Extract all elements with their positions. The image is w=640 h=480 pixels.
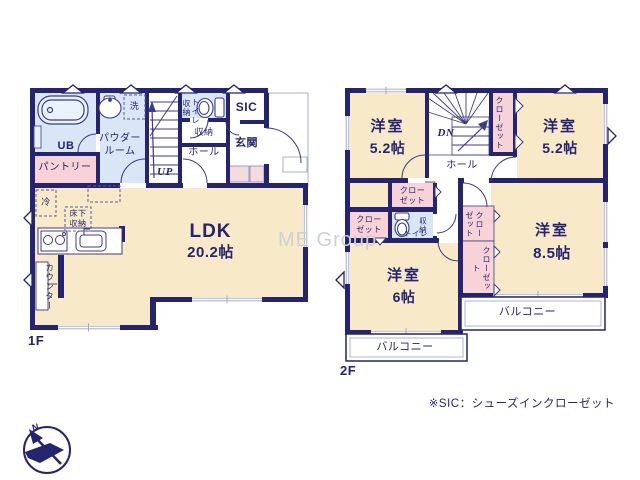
room-label-laundry: 洗 — [124, 101, 145, 112]
closet-e-upper-label: クロー ゼット — [464, 209, 484, 239]
balcony-se-label: バルコニー — [480, 306, 575, 320]
kitchen-sink-icon — [76, 229, 106, 251]
floor1-label: 1F — [28, 333, 68, 349]
room-label-pantry: パントリー — [33, 162, 97, 175]
hall-label-2f: ホール — [432, 160, 492, 173]
room-size-ne: 5.2帖 — [517, 140, 603, 158]
floor-plan-page: N UB パウダー ルーム 洗 パントリー 冷 床下 収納 カウンター UP 収… — [0, 0, 640, 480]
room-label-ub: UB — [46, 140, 86, 154]
toilet-label-1f: トイレ — [190, 94, 200, 128]
room-size-nw: 5.2帖 — [350, 140, 425, 158]
room-label-ne: 洋室 — [517, 118, 603, 137]
room-label-nw: 洋室 — [350, 118, 425, 137]
toilet-icon-1f — [197, 98, 224, 118]
closet-e-lower-label: クローゼット — [471, 244, 491, 292]
room-label-se: 洋室 — [497, 222, 607, 241]
hall-storage-label: 収納 — [180, 127, 228, 138]
room-size-se: 8.5帖 — [497, 245, 607, 264]
balcony-sw-label: バルコニー — [357, 341, 453, 355]
room-label-powder-room: パウダー ルーム — [94, 133, 146, 158]
sic-footnote: ※SIC：シューズインクローゼット — [420, 397, 615, 411]
compass-north-label: N — [31, 422, 40, 433]
fridge-label: 冷 — [36, 197, 56, 208]
staircase-down-icon — [428, 93, 489, 155]
room-size-ldk: 20.2帖 — [168, 244, 253, 263]
room-size-sw: 6帖 — [350, 289, 458, 307]
watermark: ME Group — [278, 228, 408, 253]
entrance-porch — [266, 93, 308, 186]
hall-label-1f: ホール — [180, 147, 228, 160]
room-label-ldk: LDK — [168, 220, 253, 244]
closet-n-label: クロー ゼット — [390, 186, 435, 206]
room-label-entrance: 玄関 — [228, 137, 265, 151]
floor2-label: 2F — [340, 363, 380, 379]
room-label-sic: SIC — [228, 100, 265, 115]
underfloor-storage-label: 床下 収納 — [63, 209, 93, 229]
room-label-sw: 洋室 — [350, 267, 458, 286]
kitchen-icons — [38, 228, 122, 254]
compass-icon: N — [24, 422, 70, 473]
stairs-up-label: UP — [150, 166, 180, 180]
stove-icon — [41, 231, 67, 251]
stairs-down-label: DN — [430, 127, 462, 141]
closet-ne-label: クローゼット — [494, 96, 504, 150]
counter-label: カウンター — [44, 261, 55, 313]
